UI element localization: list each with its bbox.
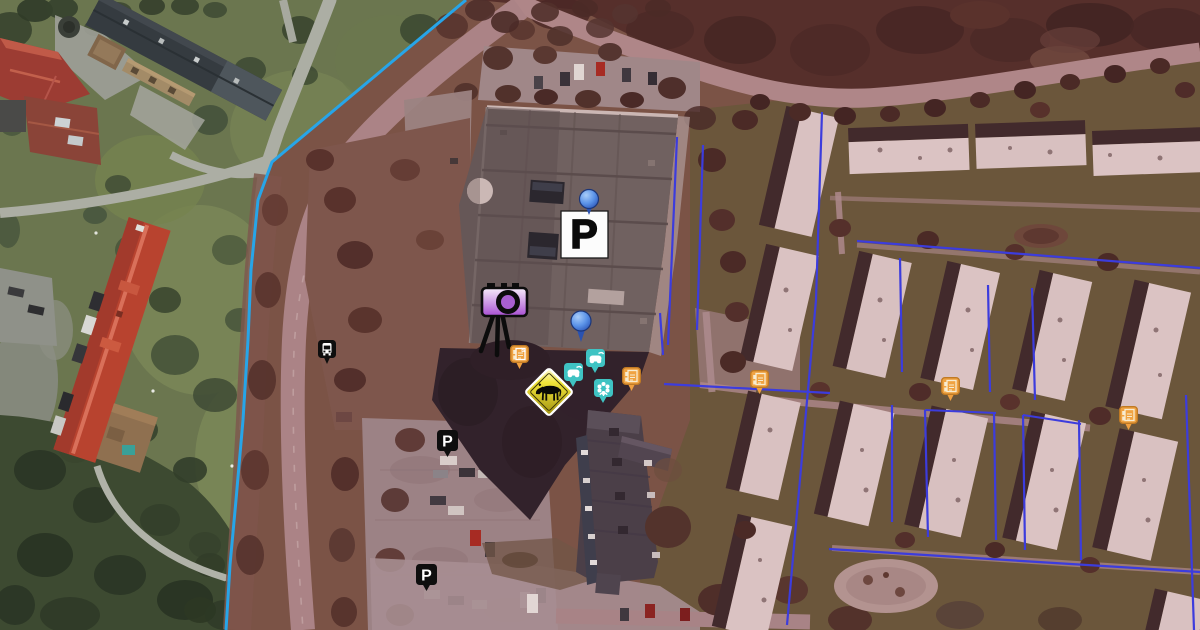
svg-text:P: P	[442, 434, 453, 451]
svg-text:P: P	[421, 568, 432, 585]
svg-text:P: P	[570, 211, 597, 257]
